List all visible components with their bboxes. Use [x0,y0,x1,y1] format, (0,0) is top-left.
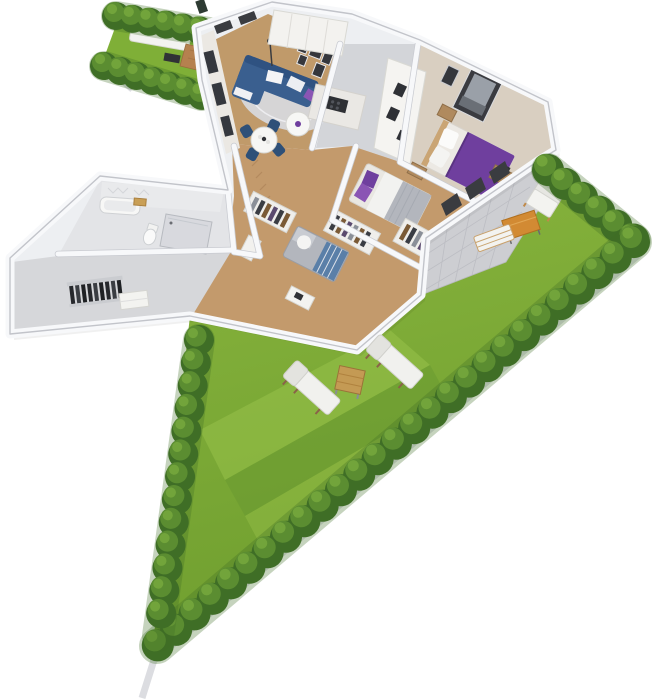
centerpiece [262,137,266,141]
entry-dresser [119,290,149,309]
scene-canvas [0,0,657,700]
drain [170,222,173,225]
floor-plan-render [0,0,657,700]
dining-table [251,127,277,153]
wood-shelf [134,198,147,206]
vase [295,121,301,127]
coffee-table [286,112,310,136]
